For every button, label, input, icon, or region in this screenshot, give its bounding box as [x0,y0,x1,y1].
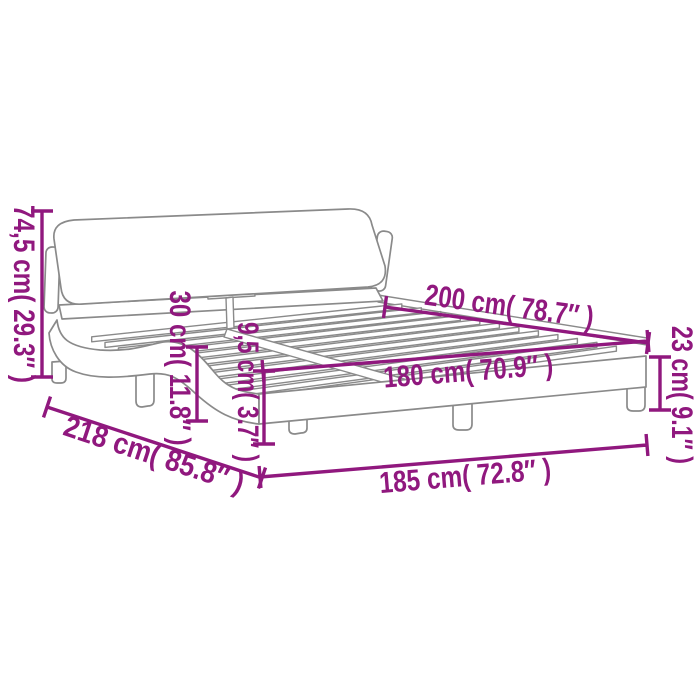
diagram-canvas: 74,5 cm( 29.3″ ) 30 cm( 11.8″ ) 9,5 cm( … [0,0,700,700]
dimension-frame-side-height: 23 cm( 9.1″ ) [649,326,698,464]
bed-dimension-diagram: 74,5 cm( 29.3″ ) 30 cm( 11.8″ ) 9,5 cm( … [0,0,700,700]
dimension-label-frame-side-height: 23 cm( 9.1″ ) [665,326,698,464]
leg [136,371,154,407]
dimension-label-total-width: 185 cm( 72.8″ ) [378,453,552,500]
dimension-label-total-height: 74,5 cm( 29.3″ ) [7,205,40,383]
dimension-label-headboard-height: 30 cm( 11.8″ ) [163,291,196,446]
dimension-label-side-rail-height: 9,5 cm( 3.7″ ) [231,322,264,462]
dimension-total-width: 185 cm( 72.8″ ) [259,434,648,500]
dimension-label-total-length: 218 cm( 85.8″ ) [60,410,249,500]
